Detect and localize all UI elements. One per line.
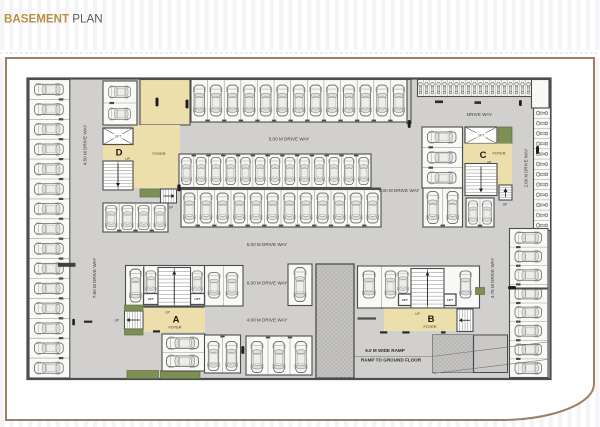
svg-text:BASEMENT PLAN: BASEMENT PLAN: [4, 13, 103, 26]
svg-text:4.50 M DRIVE WAY: 4.50 M DRIVE WAY: [83, 125, 88, 166]
svg-text:5.00 M DRIVE WAY: 5.00 M DRIVE WAY: [269, 137, 310, 142]
svg-text:FOYER: FOYER: [152, 152, 165, 156]
svg-text:LIFT: LIFT: [447, 298, 453, 302]
svg-text:5.00 M DRIVE WAY: 5.00 M DRIVE WAY: [379, 188, 420, 193]
svg-text:6.0 M WIDE RAMP: 6.0 M WIDE RAMP: [365, 348, 405, 353]
svg-text:UP: UP: [169, 206, 173, 210]
svg-text:D: D: [116, 148, 123, 159]
svg-text:4.00 M DRIVE WAY: 4.00 M DRIVE WAY: [247, 318, 288, 323]
svg-text:LIFT: LIFT: [195, 297, 201, 301]
svg-text:FOYER: FOYER: [492, 152, 505, 156]
svg-text:LIFT: LIFT: [402, 298, 408, 302]
svg-text:UP: UP: [165, 311, 169, 315]
svg-text:UP: UP: [115, 319, 119, 323]
svg-text:UP: UP: [125, 157, 129, 161]
svg-text:LIFT: LIFT: [115, 135, 122, 139]
svg-text:4.75 M DRIVE WAY: 4.75 M DRIVE WAY: [490, 258, 495, 299]
svg-text:FOYER: FOYER: [423, 325, 436, 329]
svg-text:A: A: [173, 315, 180, 326]
svg-text:LIFT: LIFT: [148, 297, 154, 301]
svg-text:UP: UP: [415, 312, 419, 316]
svg-text:LIFT: LIFT: [478, 134, 485, 138]
svg-text:B: B: [428, 314, 435, 325]
svg-text:5.00 M DRIVE WAY: 5.00 M DRIVE WAY: [247, 242, 288, 247]
svg-text:7.60 M DRIVE WAY: 7.60 M DRIVE WAY: [92, 258, 97, 299]
svg-text:UP: UP: [503, 203, 507, 207]
svg-text:C: C: [480, 150, 487, 161]
svg-text:6.00 M DRIVE WAY: 6.00 M DRIVE WAY: [247, 281, 288, 286]
svg-text:DRIVE WAY: DRIVE WAY: [467, 112, 492, 117]
svg-text:FOYER: FOYER: [168, 326, 181, 330]
svg-text:RAMP TO GROUND FLOOR: RAMP TO GROUND FLOOR: [361, 358, 422, 363]
svg-text:2.00 M DRIVE WAY: 2.00 M DRIVE WAY: [524, 149, 529, 188]
